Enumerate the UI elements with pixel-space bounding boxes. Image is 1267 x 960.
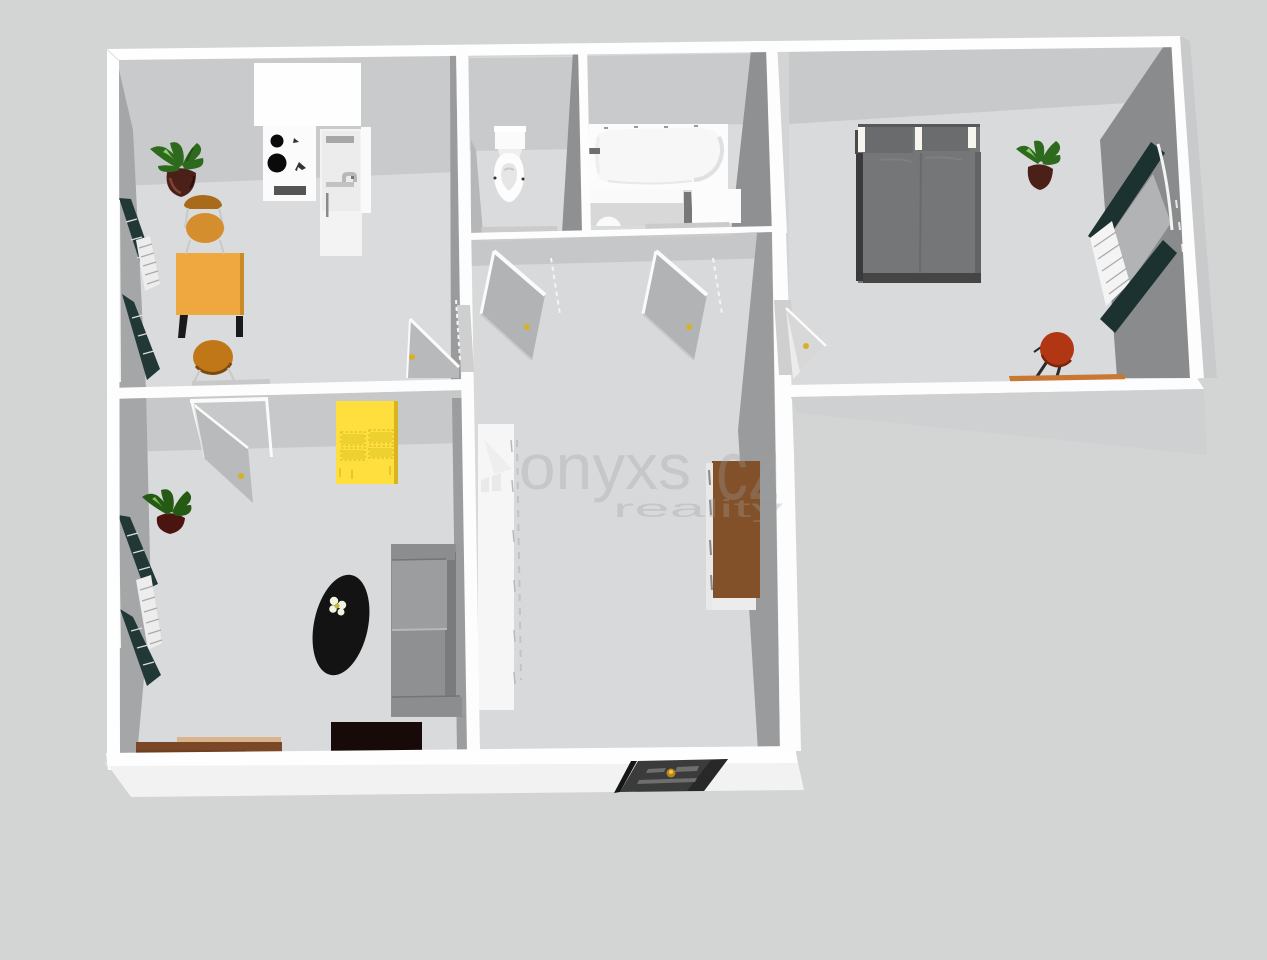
svg-text:reality: reality xyxy=(613,495,784,523)
svg-text:onyxs: onyxs xyxy=(519,431,691,503)
